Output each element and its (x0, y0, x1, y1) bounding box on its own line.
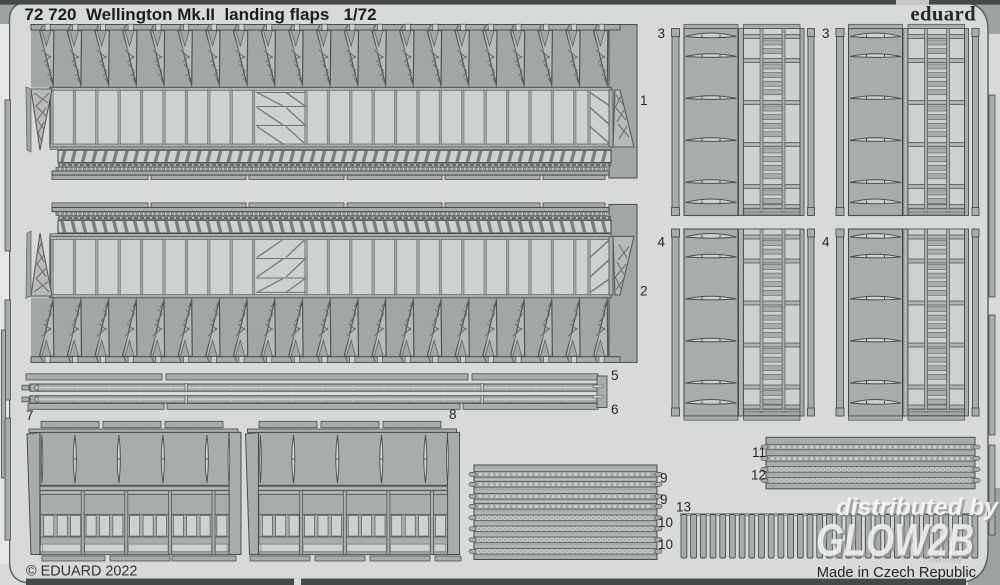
svg-text:eduard: eduard (910, 3, 976, 25)
svg-text:12: 12 (751, 468, 766, 483)
svg-text:© EDUARD 2022: © EDUARD 2022 (26, 564, 137, 580)
svg-text:10: 10 (658, 537, 673, 552)
svg-text:6: 6 (611, 402, 619, 417)
svg-text:72 720 Wellington Mk.II land: 72 720 Wellington Mk.II landing flaps 1/… (25, 5, 377, 24)
svg-text:4: 4 (822, 235, 830, 250)
svg-text:7: 7 (26, 408, 34, 423)
svg-text:13: 13 (676, 499, 691, 514)
svg-text:11: 11 (752, 445, 766, 460)
svg-text:2: 2 (640, 284, 648, 299)
svg-text:Germany: Germany (929, 556, 962, 565)
svg-text:3: 3 (658, 26, 666, 41)
svg-text:3: 3 (822, 26, 830, 41)
svg-text:4: 4 (658, 235, 666, 250)
svg-text:9: 9 (660, 471, 668, 486)
svg-text:9: 9 (660, 492, 668, 507)
svg-text:5: 5 (611, 368, 619, 383)
svg-text:10: 10 (658, 515, 673, 530)
svg-text:8: 8 (449, 407, 457, 422)
svg-text:1: 1 (640, 93, 648, 108)
